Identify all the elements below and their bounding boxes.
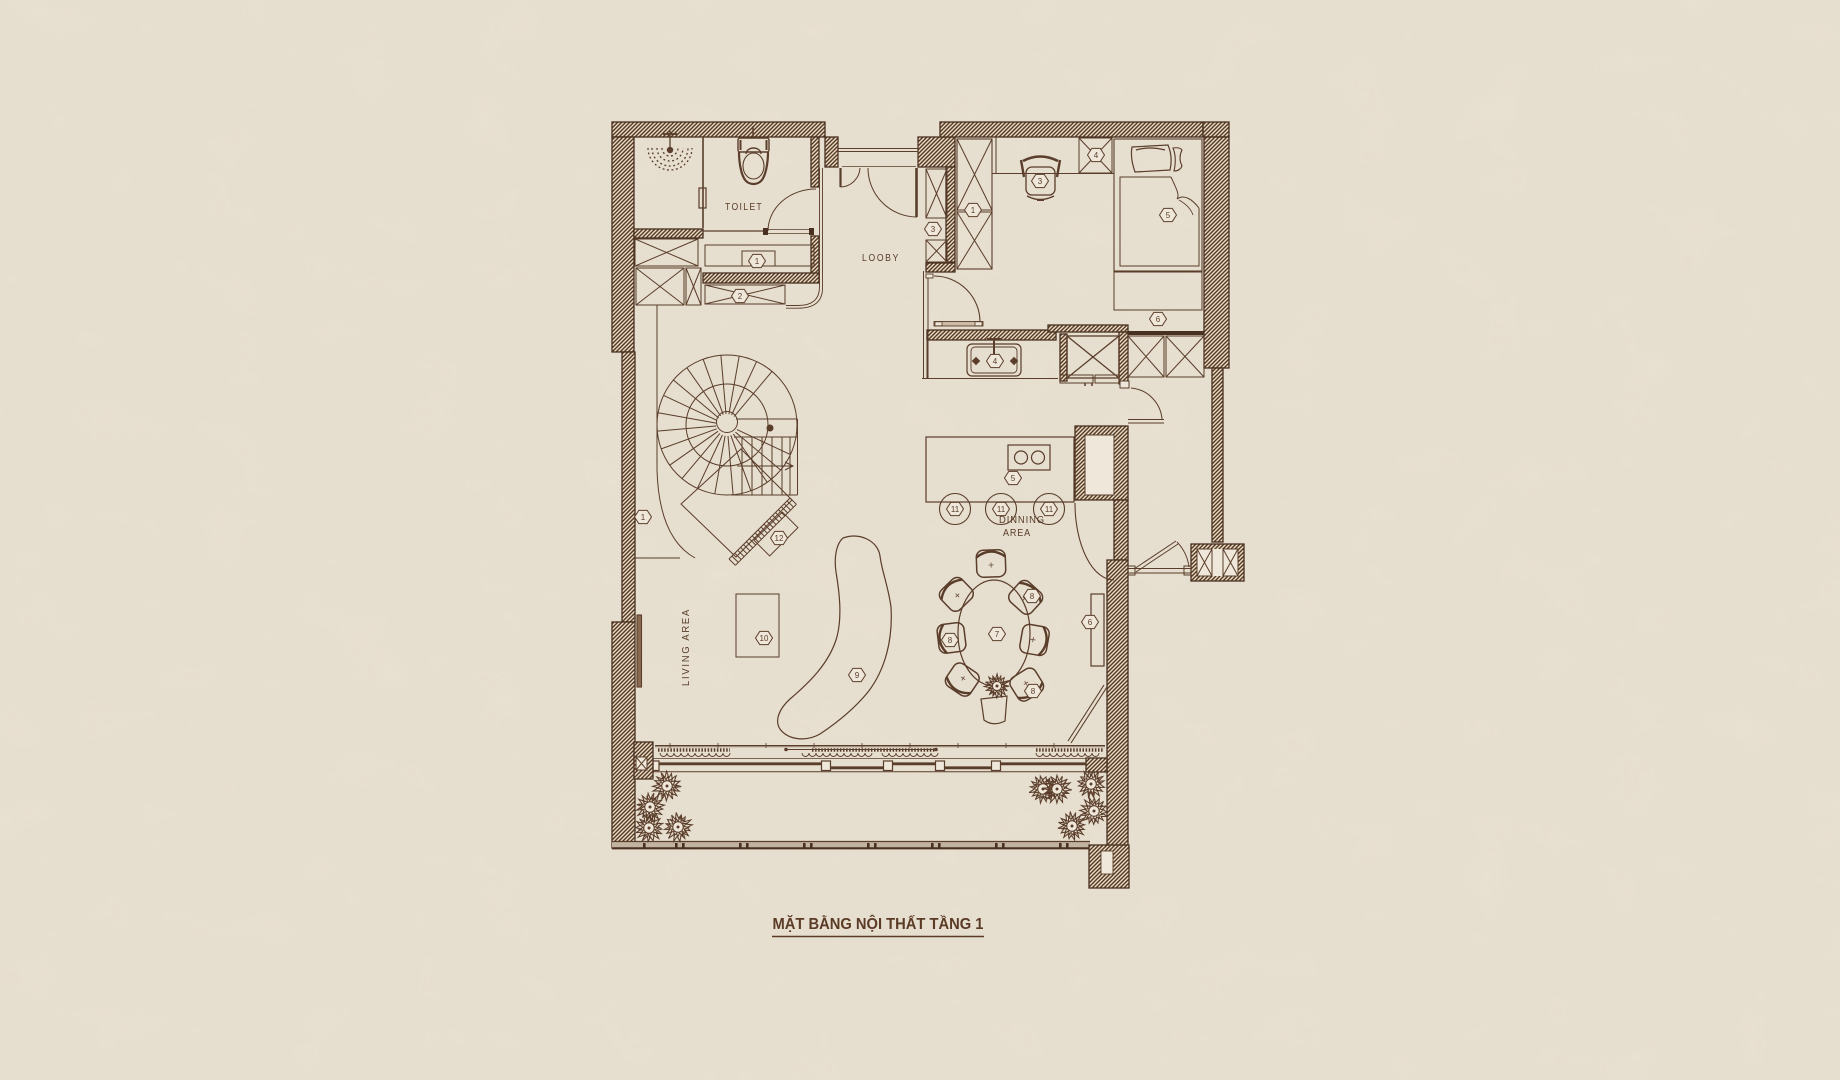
svg-text:5: 5 [1011,474,1016,483]
svg-text:4: 4 [1094,151,1099,160]
svg-text:4: 4 [993,357,998,366]
svg-text:MẶT BẰNG NỘI THẤT TẦNG 1: MẶT BẰNG NỘI THẤT TẦNG 1 [773,914,984,933]
svg-text:6: 6 [1088,618,1093,627]
svg-text:1: 1 [971,206,976,215]
svg-text:1: 1 [755,257,760,266]
svg-text:3: 3 [931,225,936,234]
svg-text:AREA: AREA [1003,527,1031,539]
svg-text:TOILET: TOILET [725,202,763,213]
svg-text:6: 6 [1156,315,1161,324]
svg-text:9: 9 [855,671,860,680]
svg-text:8: 8 [948,636,953,645]
svg-text:LIVING AREA: LIVING AREA [680,608,692,686]
svg-text:5: 5 [1166,211,1171,220]
svg-text:8: 8 [1031,687,1036,696]
svg-text:11: 11 [951,505,960,514]
svg-text:12: 12 [775,534,784,543]
svg-text:11: 11 [1045,505,1054,514]
svg-text:10: 10 [760,634,769,643]
svg-text:DINNING: DINNING [999,514,1045,526]
svg-text:7: 7 [995,630,1000,639]
svg-text:8: 8 [1030,592,1035,601]
svg-text:2: 2 [738,292,743,301]
svg-text:3: 3 [1038,177,1043,186]
svg-text:LOOBY: LOOBY [862,252,900,264]
svg-text:1: 1 [641,513,646,522]
svg-text:11: 11 [997,505,1006,514]
